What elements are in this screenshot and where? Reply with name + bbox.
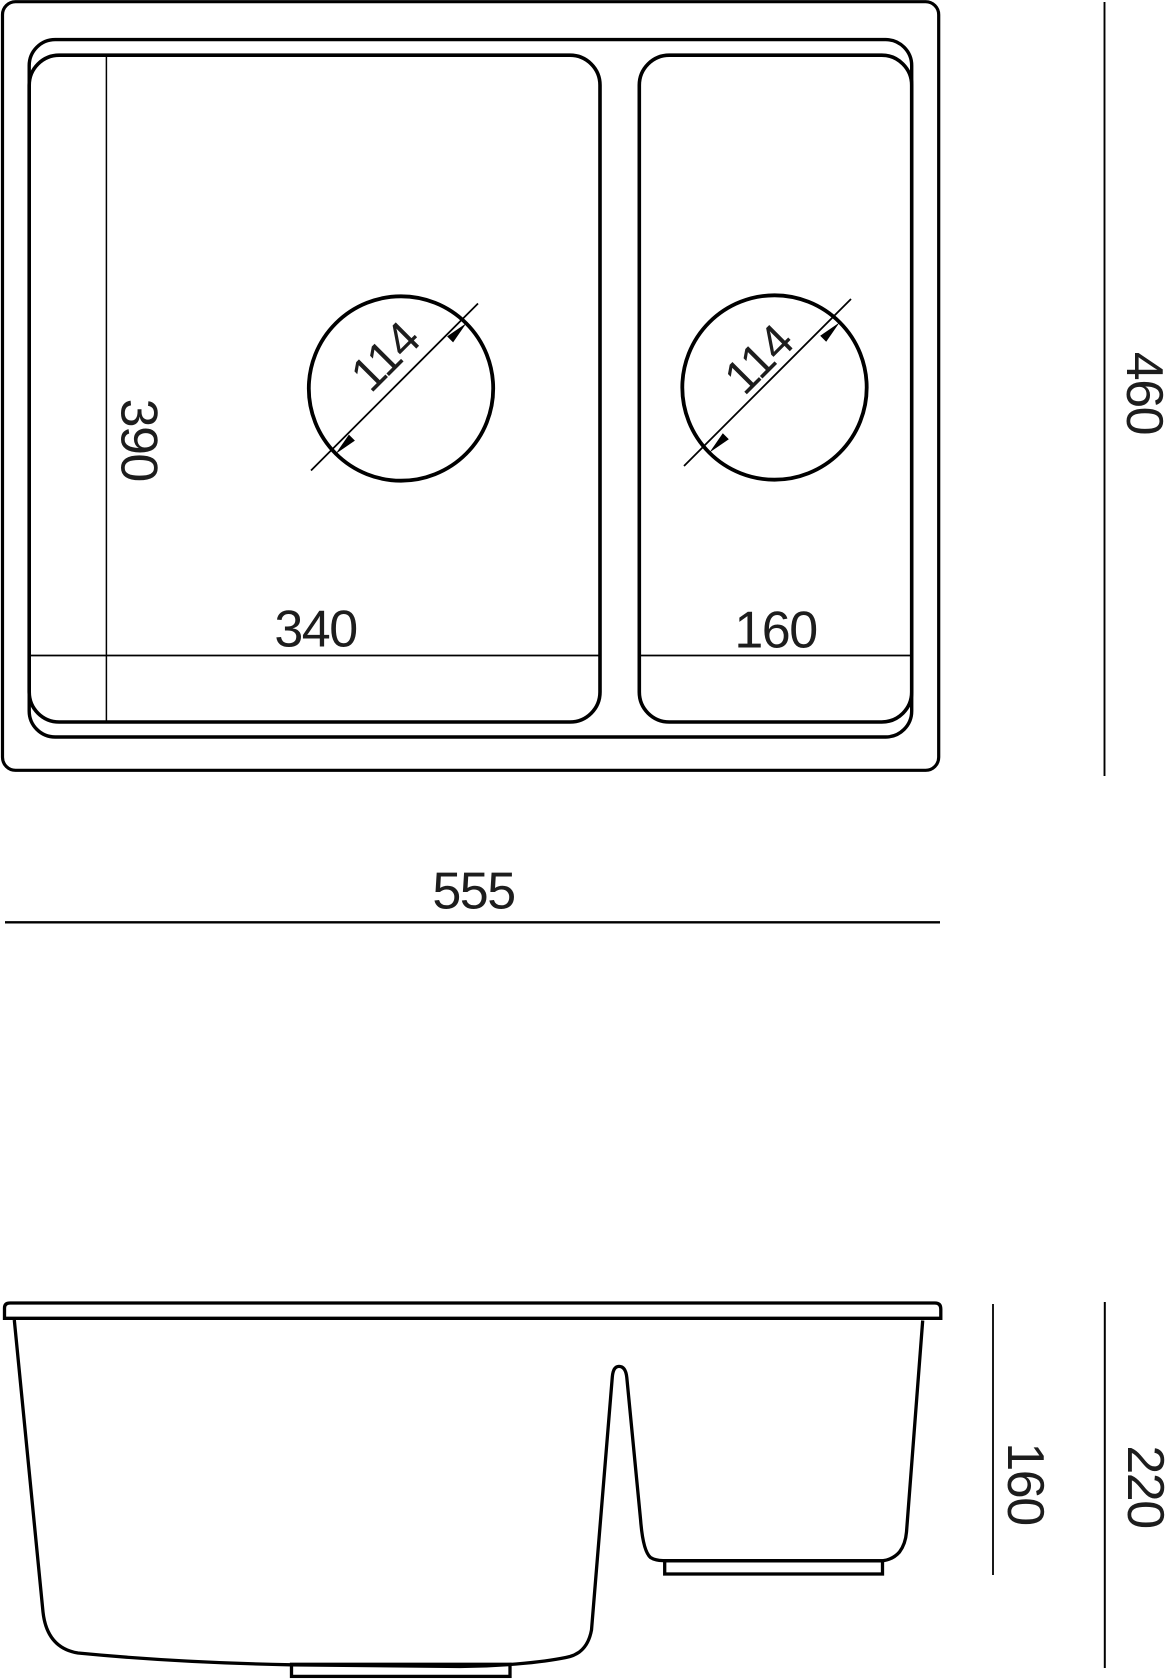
svg-text:160: 160 (734, 601, 816, 659)
svg-text:160: 160 (996, 1442, 1054, 1524)
svg-text:340: 340 (274, 601, 356, 659)
svg-text:220: 220 (1116, 1445, 1166, 1527)
svg-text:555: 555 (432, 862, 514, 920)
svg-text:114: 114 (715, 315, 805, 405)
svg-text:460: 460 (1115, 352, 1166, 434)
svg-text:114: 114 (341, 312, 431, 402)
svg-text:390: 390 (109, 399, 167, 481)
